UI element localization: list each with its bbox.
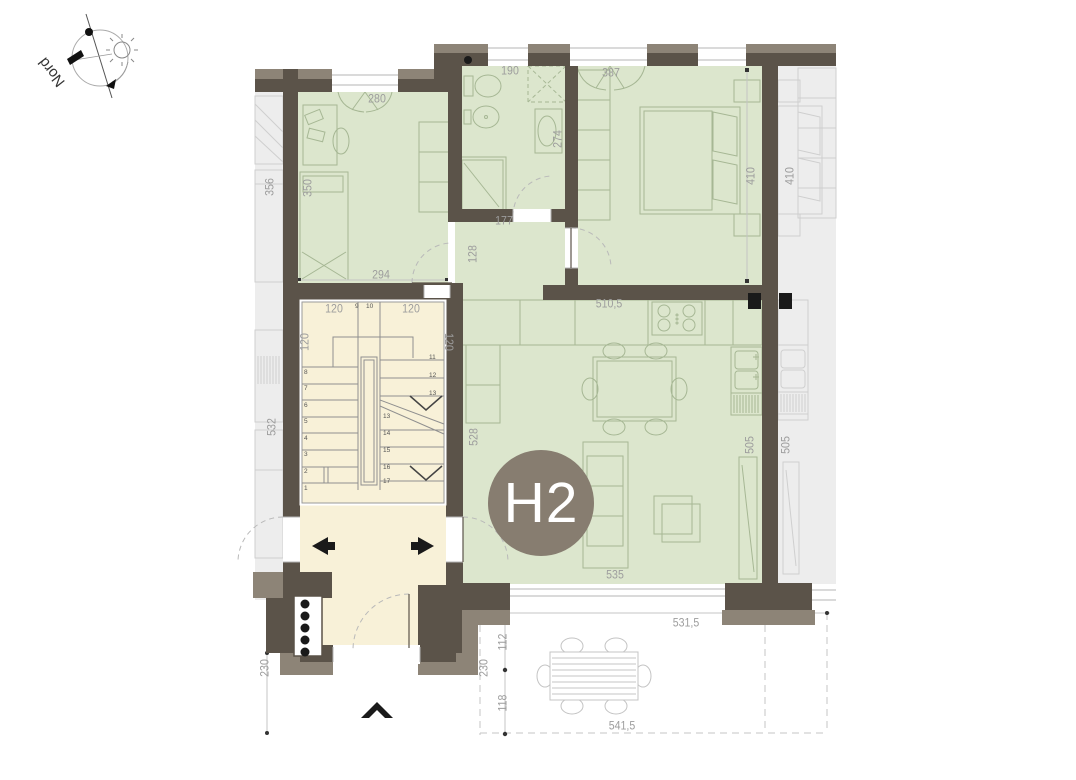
door-opening-neighbor — [283, 517, 300, 562]
window-neighbor-bottom — [812, 584, 836, 607]
sun-icon — [114, 42, 130, 58]
mailbox-dot — [301, 600, 310, 609]
unit-badge: H2 — [488, 450, 594, 556]
window-535 — [510, 584, 725, 601]
door-opening-living — [446, 517, 463, 562]
building-entry-arrow-icon — [361, 702, 393, 718]
door-opening-bathroom — [513, 209, 551, 222]
mailbox-dot — [301, 624, 310, 633]
room-fills — [255, 60, 836, 652]
floorplan-drawing — [0, 0, 1076, 780]
compass-icon — [67, 14, 138, 98]
pipe-dot — [464, 56, 472, 64]
door-opening-bedroom-small — [424, 285, 450, 298]
entry-door-opening — [333, 645, 420, 664]
window-neighbor — [698, 42, 746, 66]
floorplan-canvas: 280190387356350274410410177128294510,512… — [0, 0, 1076, 780]
mailbox-dot — [301, 648, 310, 657]
terrace-furniture — [537, 638, 651, 714]
window-bathroom — [488, 42, 528, 66]
mailbox-dot — [301, 612, 310, 621]
duct-box — [779, 293, 792, 309]
window-387 — [570, 42, 647, 66]
compass-needle — [67, 50, 84, 65]
window-280 — [332, 70, 398, 92]
stair-handrail — [361, 357, 377, 485]
duct-box — [748, 293, 761, 309]
mailbox-dot — [301, 636, 310, 645]
